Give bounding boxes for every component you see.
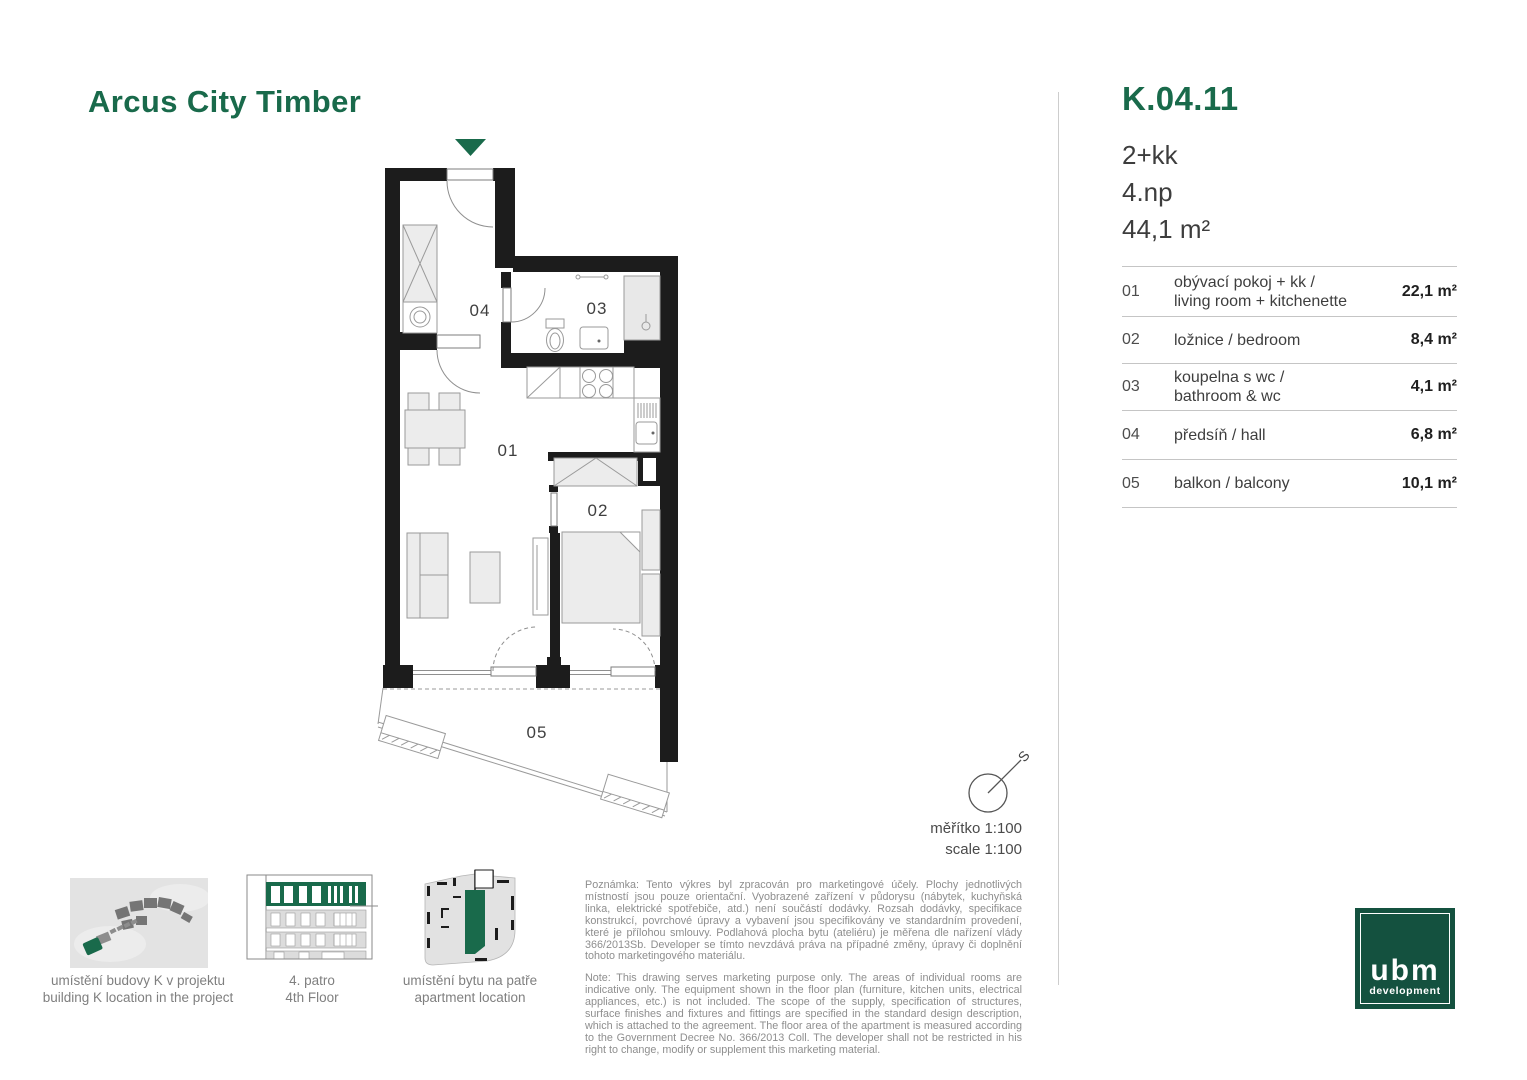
room-area: 4,1 m² [1411,378,1457,396]
room-area: 22,1 m² [1402,283,1457,301]
tv-sideboard [533,538,548,615]
room-name: obývací pokoj + kk / living room + kitch… [1174,273,1402,311]
bedroom-wardrobe [554,458,637,486]
room-number: 05 [1122,475,1174,493]
disclaimer-cs: Poznámka: Tento výkres byl zpracován pro… [585,880,1022,963]
room-label-05: 05 [527,723,548,742]
table-row: 04 předsíň / hall 6,8 m² [1122,410,1457,459]
table-row: 03 koupelna s wc / bathroom & wc 4,1 m² [1122,363,1457,410]
room-label-02: 02 [588,501,609,520]
table-row: 05 balkon / balcony 10,1 m² [1122,459,1457,508]
floor-plate-thumbnail [417,868,523,970]
bathroom-sink [580,327,608,349]
logo-tagline: development [1369,985,1440,997]
table-row: 01 obývací pokoj + kk / living room + ki… [1122,266,1457,316]
entrance-arrow-icon [455,139,486,156]
bedside-unit [642,510,660,570]
shaft [643,458,656,481]
vertical-divider [1058,92,1059,985]
unit-code: K.04.11 [1122,80,1239,118]
room-number: 04 [1122,426,1174,444]
furniture [403,225,660,636]
room-area: 10,1 m² [1402,475,1457,493]
room-area: 6,8 m² [1411,426,1457,444]
building-elevation-thumbnail [244,872,380,970]
logo-brand: ubm [1370,957,1439,985]
room-area: 8,4 m² [1411,331,1457,349]
project-title: Arcus City Timber [88,84,361,120]
room-table: 01 obývací pokoj + kk / living room + ki… [1122,266,1457,508]
highlighted-apartment [465,890,485,954]
planter-right [601,774,670,818]
north-compass-icon: S [960,745,1040,820]
ubm-logo: ubm development [1355,908,1455,1009]
room-name: koupelna s wc / bathroom & wc [1174,368,1411,406]
bed [562,532,640,623]
room-name: ložnice / bedroom [1174,331,1411,350]
unit-floor: 4.np [1122,174,1210,211]
dining-table [405,410,465,448]
site-plan-caption: umístění budovy K v projektu building K … [38,972,238,1006]
scale-note: měřítko 1:100 scale 1:100 [900,818,1022,860]
chair [439,393,460,410]
disclaimer: Poznámka: Tento výkres byl zpracován pro… [585,880,1022,1067]
floorplan-sheet: Arcus City Timber [0,0,1527,1080]
room-name: předsíň / hall [1174,426,1411,445]
planter-left [379,716,446,759]
unit-info: 2+kk 4.np 44,1 m² [1122,137,1210,248]
room-name: balkon / balcony [1174,474,1402,493]
room-label-03: 03 [587,299,608,318]
chair [439,448,460,465]
room-label-01: 01 [498,441,519,460]
room-label-04: 04 [470,301,491,320]
bedside-unit [642,574,660,636]
chair [408,448,429,465]
room-number: 03 [1122,378,1174,396]
table-row: 02 ložnice / bedroom 8,4 m² [1122,316,1457,363]
balcony-outline [378,688,669,818]
floor-plan-drawing: 01 02 03 04 05 [340,130,700,830]
coffee-table [470,552,500,603]
shower [624,276,660,340]
unit-area: 44,1 m² [1122,211,1210,248]
chair [408,393,429,410]
elevation-caption: 4. patro 4th Floor [252,972,372,1006]
floor-plate-caption: umístění bytu na patře apartment locatio… [396,972,544,1006]
disclaimer-en: Note: This drawing serves marketing purp… [585,973,1022,1056]
balcony-glass-wall [413,627,655,676]
svg-text:S: S [1015,747,1033,764]
unit-disposition: 2+kk [1122,137,1210,174]
toilet [546,319,564,328]
room-number: 01 [1122,283,1174,301]
site-plan-thumbnail [70,878,208,968]
room-number: 02 [1122,331,1174,349]
